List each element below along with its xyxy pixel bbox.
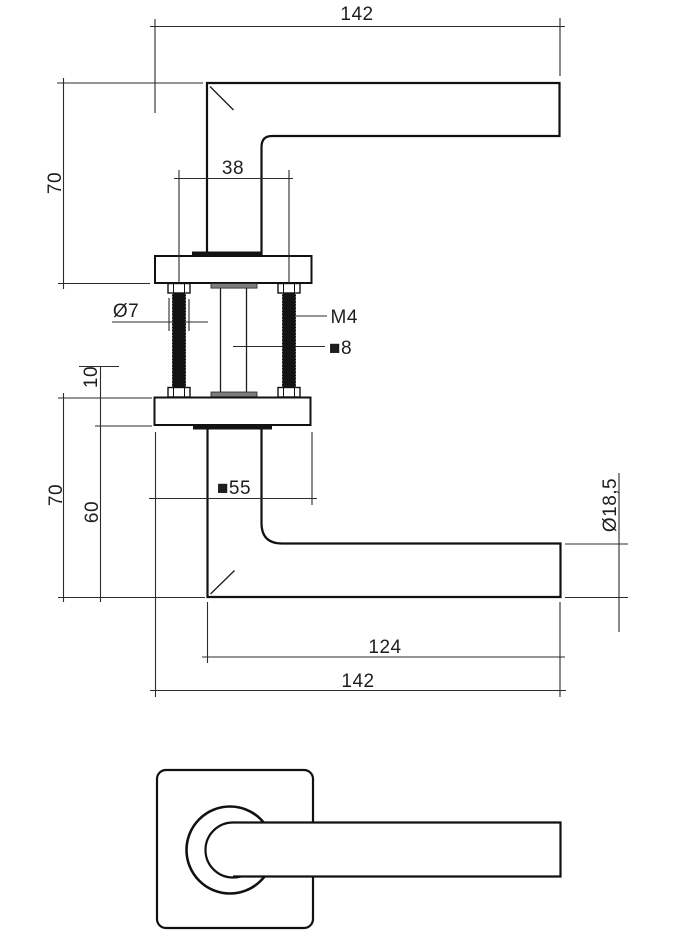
dim-top-height: 70 <box>45 172 66 194</box>
front-handle-bar <box>233 823 561 877</box>
drawing-svg: 142 70 38 Ø7 M4 ■8 10 70 60 ■55 Ø18,5 12… <box>0 0 682 938</box>
label-screw-diameter: Ø7 <box>113 301 139 322</box>
dim-bottom-height: 70 <box>46 484 67 506</box>
spindle <box>211 284 257 397</box>
front-view <box>157 770 561 928</box>
dim-rosette-size: ■55 <box>217 478 251 499</box>
dim-bottom-total-length: 142 <box>341 671 374 692</box>
dim-bottom-offset: 60 <box>82 501 103 523</box>
lower-rose-collar <box>193 425 272 430</box>
label-thread-size: M4 <box>331 307 358 328</box>
upper-rose-collar <box>192 252 262 257</box>
top-view-handle <box>207 83 560 256</box>
technical-drawing-door-handle: 142 70 38 Ø7 M4 ■8 10 70 60 ■55 Ø18,5 12… <box>0 0 682 938</box>
dim-top-total-length: 142 <box>340 4 373 25</box>
right-screw <box>278 284 300 413</box>
dim-screw-spacing: 38 <box>222 158 244 179</box>
dim-grip-length: 124 <box>368 637 401 658</box>
side-view-handle <box>208 430 561 598</box>
lower-rosette <box>155 398 311 426</box>
dim-grip-diameter: Ø18,5 <box>600 478 621 532</box>
label-spindle-size: ■8 <box>329 338 352 359</box>
dim-rosette-thickness: 10 <box>81 366 102 388</box>
left-screw <box>168 284 190 413</box>
